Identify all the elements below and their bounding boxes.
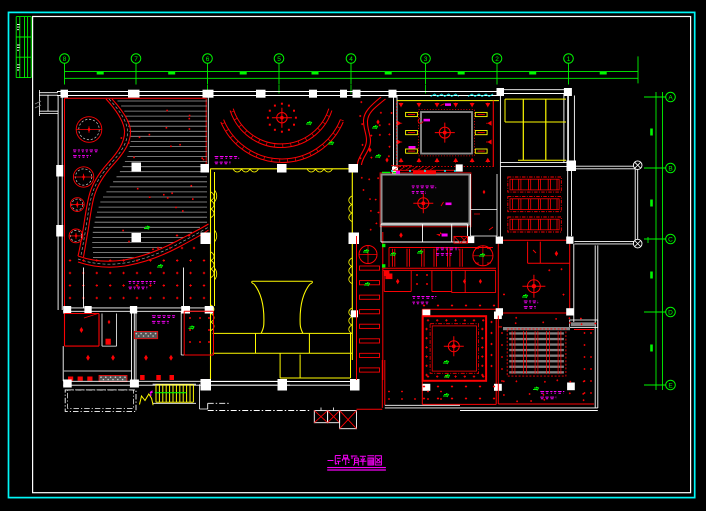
svg-text:7: 7 [134, 56, 138, 63]
svg-text:6: 6 [206, 56, 210, 63]
svg-text:B: B [668, 165, 672, 172]
svg-text:C: C [668, 236, 673, 243]
svg-text:D: D [668, 309, 673, 316]
svg-text:E: E [668, 382, 673, 389]
svg-text:8: 8 [63, 56, 67, 63]
svg-text:1: 1 [567, 56, 571, 63]
svg-text:A: A [668, 94, 673, 101]
svg-text:2: 2 [495, 56, 499, 63]
svg-text:4: 4 [349, 56, 353, 63]
svg-text:5: 5 [277, 56, 281, 63]
svg-text:3: 3 [424, 56, 428, 63]
